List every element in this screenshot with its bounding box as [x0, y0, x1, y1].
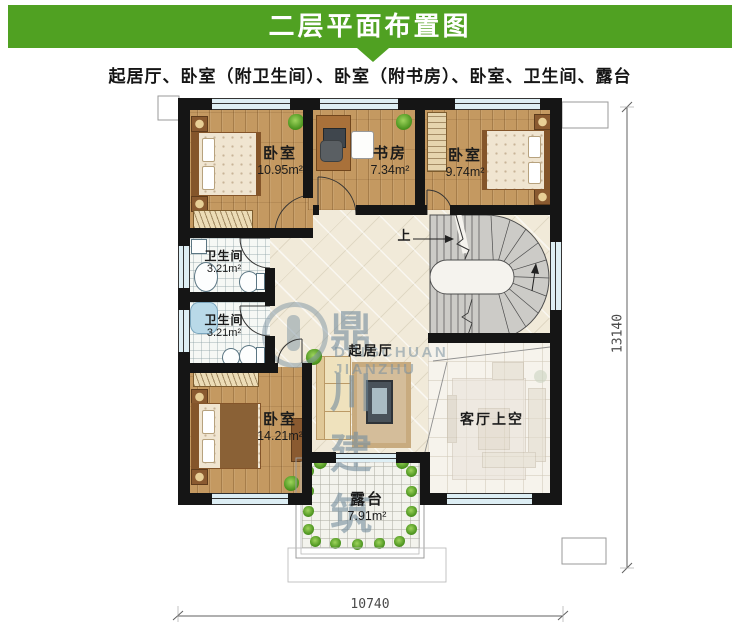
room-label-terrace: 露台 7.91m² — [330, 492, 404, 523]
room-label-bedroom-tl: 卧室 10.95m² — [235, 146, 325, 177]
banner-pointer-triangle — [357, 48, 389, 62]
wall-segment — [312, 452, 336, 463]
room-summary-subtitle: 起居厅、卧室（附卫生间）、卧室（附书房）、卧室、卫生间、露台 — [0, 62, 740, 87]
dimension-height: 13140 — [611, 304, 626, 364]
living-rug — [352, 362, 411, 448]
wall-segment — [450, 205, 562, 215]
room-label-void: 客厅上空 — [450, 412, 534, 428]
toilet-tank — [256, 347, 265, 364]
wall-segment — [178, 292, 275, 302]
plant-icon — [352, 539, 363, 550]
window — [178, 246, 190, 288]
wardrobe — [193, 210, 253, 229]
room-label-living: 起居厅 — [336, 344, 406, 359]
toilet-tank — [256, 273, 265, 290]
window — [320, 98, 398, 110]
window — [550, 242, 562, 310]
room-label-bedroom-tr: 卧室 9.74m² — [425, 148, 505, 179]
wall-segment — [415, 205, 427, 215]
terrace-slider-door — [336, 453, 396, 462]
room-label-bedroom-bl: 卧室 14.21m² — [240, 412, 320, 443]
window — [212, 98, 290, 110]
wall-segment — [420, 452, 430, 505]
wall-segment — [428, 333, 562, 343]
nightstand — [191, 469, 208, 485]
wall-segment — [313, 205, 319, 215]
room-label-bath-upper: 卫生间 3.21m² — [193, 250, 255, 276]
wall-segment — [178, 228, 313, 238]
wall-segment — [396, 452, 422, 463]
room-label-study: 书房 7.34m² — [348, 146, 432, 177]
wall-segment — [265, 228, 275, 238]
nightstand — [191, 116, 208, 132]
stair-up-label: 上 — [396, 229, 412, 244]
room-label-bath-lower: 卫生间 3.21m² — [193, 314, 255, 340]
sofa — [316, 356, 351, 440]
window — [447, 493, 532, 505]
window — [212, 493, 288, 505]
nightstand — [534, 189, 551, 205]
title-banner: 二层平面布置图 — [8, 5, 732, 48]
window — [178, 310, 190, 352]
nightstand — [534, 114, 551, 130]
dimension-width: 10740 — [338, 597, 402, 612]
window — [455, 98, 540, 110]
wall-segment — [178, 363, 278, 373]
page-title: 二层平面布置图 — [8, 5, 732, 48]
